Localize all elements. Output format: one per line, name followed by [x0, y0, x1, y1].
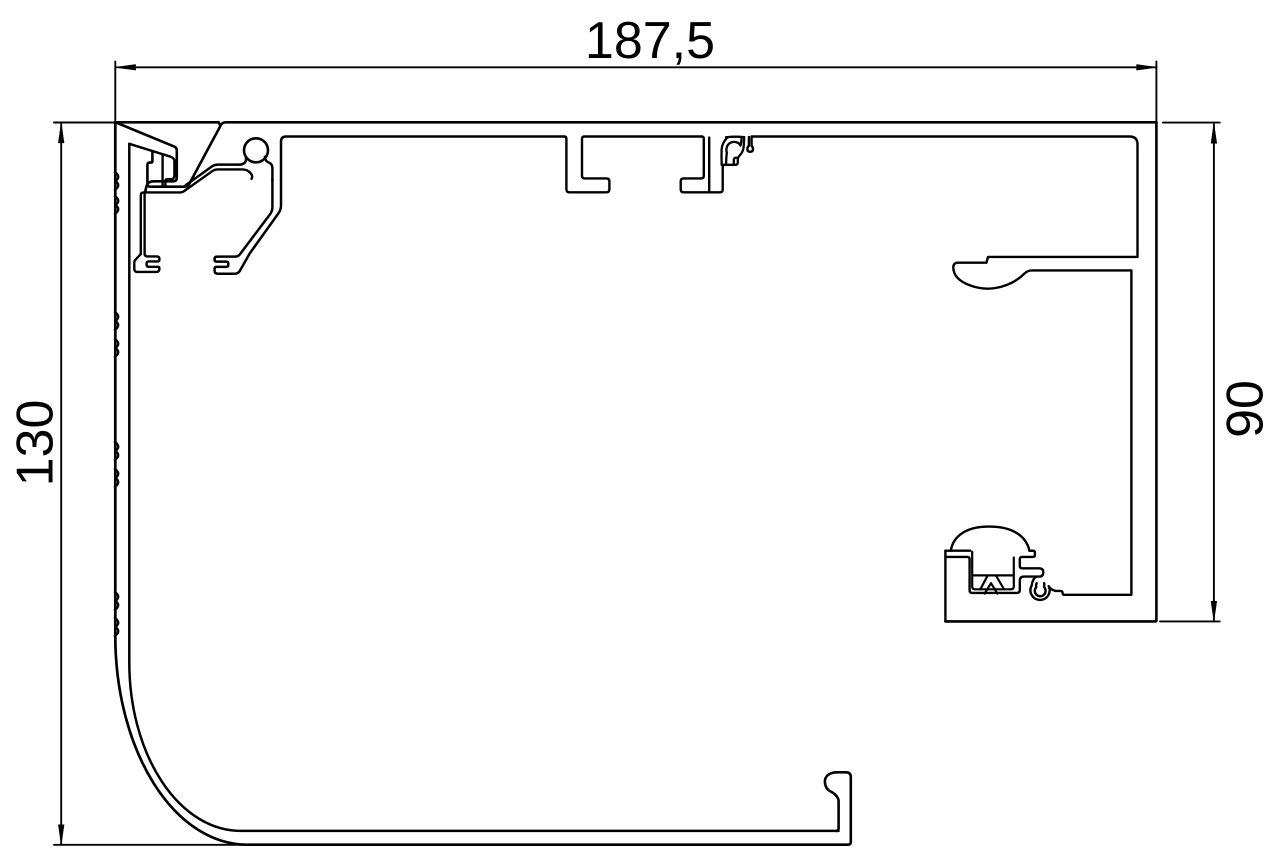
svg-text:90: 90	[1217, 380, 1275, 438]
svg-text:130: 130	[7, 400, 65, 487]
svg-text:187,5: 187,5	[585, 12, 715, 70]
